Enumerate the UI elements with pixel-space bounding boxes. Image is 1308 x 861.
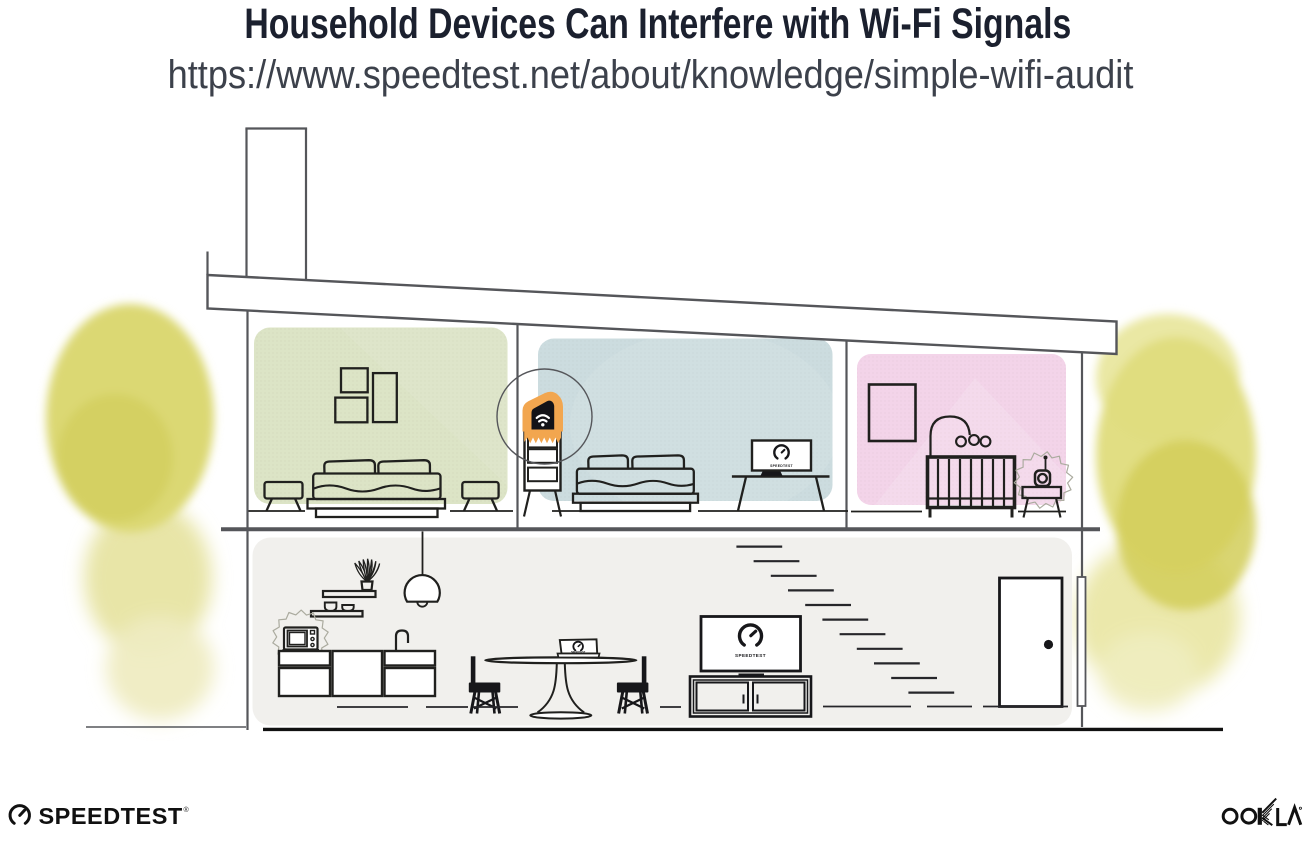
svg-text:SPEEDTEST: SPEEDTEST <box>735 653 766 658</box>
svg-text:SPEEDTEST: SPEEDTEST <box>770 464 793 468</box>
svg-text:SPEEDTEST: SPEEDTEST <box>571 651 586 654</box>
svg-text:SPEEDTEST: SPEEDTEST <box>39 803 183 829</box>
svg-text:®: ® <box>184 806 190 814</box>
